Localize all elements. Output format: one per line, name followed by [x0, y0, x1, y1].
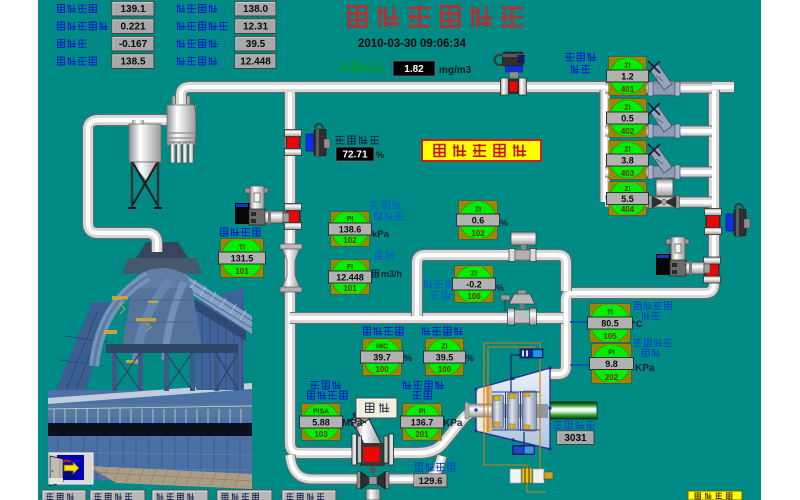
svg-text:138.0: 138.0	[243, 4, 268, 15]
svg-text:102: 102	[343, 236, 357, 245]
svg-text:ZI: ZI	[624, 62, 630, 69]
svg-text:102: 102	[471, 229, 485, 238]
svg-text:12.448: 12.448	[336, 272, 364, 282]
svg-text:3031: 3031	[564, 433, 587, 444]
svg-text:%: %	[496, 283, 504, 293]
svg-text:PI: PI	[419, 409, 426, 416]
svg-text:101: 101	[235, 267, 249, 276]
svg-text:401: 401	[621, 85, 635, 94]
svg-text:TI: TI	[607, 309, 613, 316]
svg-text:mg/m3: mg/m3	[439, 65, 472, 76]
svg-text:129.6: 129.6	[419, 476, 443, 487]
svg-text:403: 403	[621, 169, 635, 178]
svg-text:PISA: PISA	[313, 409, 329, 416]
svg-text:202: 202	[605, 373, 619, 382]
svg-text:ZI: ZI	[441, 344, 447, 351]
svg-text:100: 100	[438, 365, 452, 374]
svg-text:0.5: 0.5	[621, 113, 634, 123]
svg-text:136.7: 136.7	[411, 417, 434, 427]
svg-text:39.5: 39.5	[436, 352, 454, 362]
svg-text:HIC: HIC	[376, 344, 388, 351]
svg-text:ZI: ZI	[624, 104, 630, 111]
svg-text:106: 106	[467, 292, 481, 301]
svg-text:-0.167: -0.167	[119, 39, 148, 50]
svg-text:5.88: 5.88	[312, 417, 330, 427]
svg-text:0.6: 0.6	[472, 215, 485, 225]
svg-text:%: %	[500, 218, 508, 228]
svg-text:°C: °C	[632, 319, 643, 330]
svg-text:%: %	[376, 150, 384, 160]
svg-text:5.5: 5.5	[621, 194, 634, 204]
svg-text:12.448: 12.448	[240, 57, 271, 68]
svg-text:MPa: MPa	[342, 418, 363, 429]
svg-text:103: 103	[314, 430, 328, 439]
svg-text:402: 402	[621, 127, 635, 136]
svg-text:12.31: 12.31	[243, 22, 268, 33]
svg-text:PI: PI	[608, 350, 615, 357]
svg-text:80.5: 80.5	[601, 318, 619, 328]
svg-text:9.8: 9.8	[605, 359, 618, 369]
svg-text:TI: TI	[239, 244, 245, 251]
svg-text:KPa: KPa	[635, 363, 655, 374]
svg-text:0.221: 0.221	[120, 22, 145, 33]
svg-text:105: 105	[603, 332, 617, 341]
svg-text:%: %	[466, 353, 474, 363]
svg-text:ZI: ZI	[624, 186, 630, 193]
svg-text:201: 201	[415, 430, 429, 439]
svg-text:39.7: 39.7	[373, 352, 391, 362]
svg-text:2010-03-30 09:06:34: 2010-03-30 09:06:34	[358, 38, 467, 50]
svg-text:ZI: ZI	[624, 146, 630, 153]
svg-text:PI: PI	[347, 216, 354, 223]
svg-text:39.5: 39.5	[246, 39, 266, 50]
svg-text:138.6: 138.6	[339, 224, 362, 234]
svg-text:m3/h: m3/h	[381, 269, 402, 279]
svg-text:139.1: 139.1	[120, 4, 145, 15]
svg-text:138.5: 138.5	[120, 57, 145, 68]
svg-text:ZI: ZI	[475, 206, 481, 213]
svg-text:FI: FI	[347, 264, 353, 271]
svg-text:-0.2: -0.2	[466, 279, 482, 289]
svg-text:101: 101	[343, 284, 357, 293]
svg-text:72.71: 72.71	[342, 150, 367, 161]
svg-text::: :	[383, 64, 386, 75]
svg-text:3.8: 3.8	[621, 155, 634, 165]
svg-text:1.2: 1.2	[621, 71, 634, 81]
svg-text:1.82: 1.82	[404, 64, 424, 75]
svg-text:131.5: 131.5	[231, 253, 254, 263]
svg-text:%: %	[404, 353, 412, 363]
svg-text:404: 404	[621, 205, 635, 214]
svg-text:kPa: kPa	[372, 229, 390, 240]
svg-text:KPa: KPa	[443, 418, 463, 429]
svg-text:ZI: ZI	[471, 271, 477, 278]
svg-text:100: 100	[375, 365, 389, 374]
